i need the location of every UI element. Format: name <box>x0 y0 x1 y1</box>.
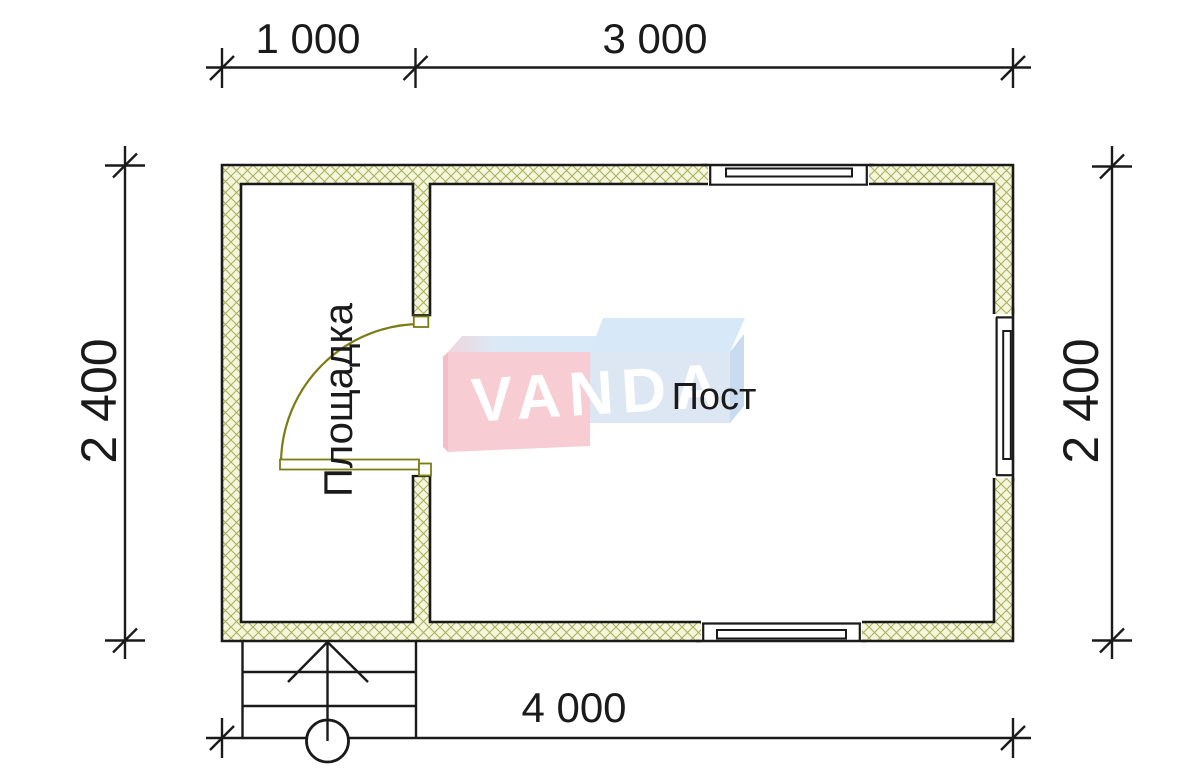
dimension-value-right: 2 400 <box>1053 338 1109 463</box>
door-opening <box>411 314 433 477</box>
door-jamb-block-top <box>414 317 429 328</box>
entrance-stairs <box>243 641 417 762</box>
door-hinge-block <box>419 464 431 476</box>
dimension-left: 2 400 <box>71 146 145 659</box>
dimension-value-top-left: 1 000 <box>255 15 360 62</box>
dimension-top: 1 000 3 000 <box>206 15 1031 88</box>
dimension-value-left: 2 400 <box>71 338 127 463</box>
logo-pink-side-face <box>443 352 448 452</box>
logo-blue-top-face <box>590 318 745 352</box>
room-label-left: Площадка <box>317 302 361 497</box>
window-top <box>702 162 874 187</box>
window-bottom <box>696 620 866 643</box>
window-right <box>992 308 1015 482</box>
dimension-value-bottom: 4 000 <box>521 684 626 731</box>
logo-pink-top-face <box>448 336 606 352</box>
room-label-right: Пост <box>672 376 757 418</box>
dimension-right: 2 400 <box>1053 146 1132 659</box>
floor-plan-canvas: VANDA Площадка По <box>0 0 1200 772</box>
dimension-value-top-right: 3 000 <box>602 15 707 62</box>
floor-plan-page: VANDA Площадка По <box>0 0 1200 772</box>
